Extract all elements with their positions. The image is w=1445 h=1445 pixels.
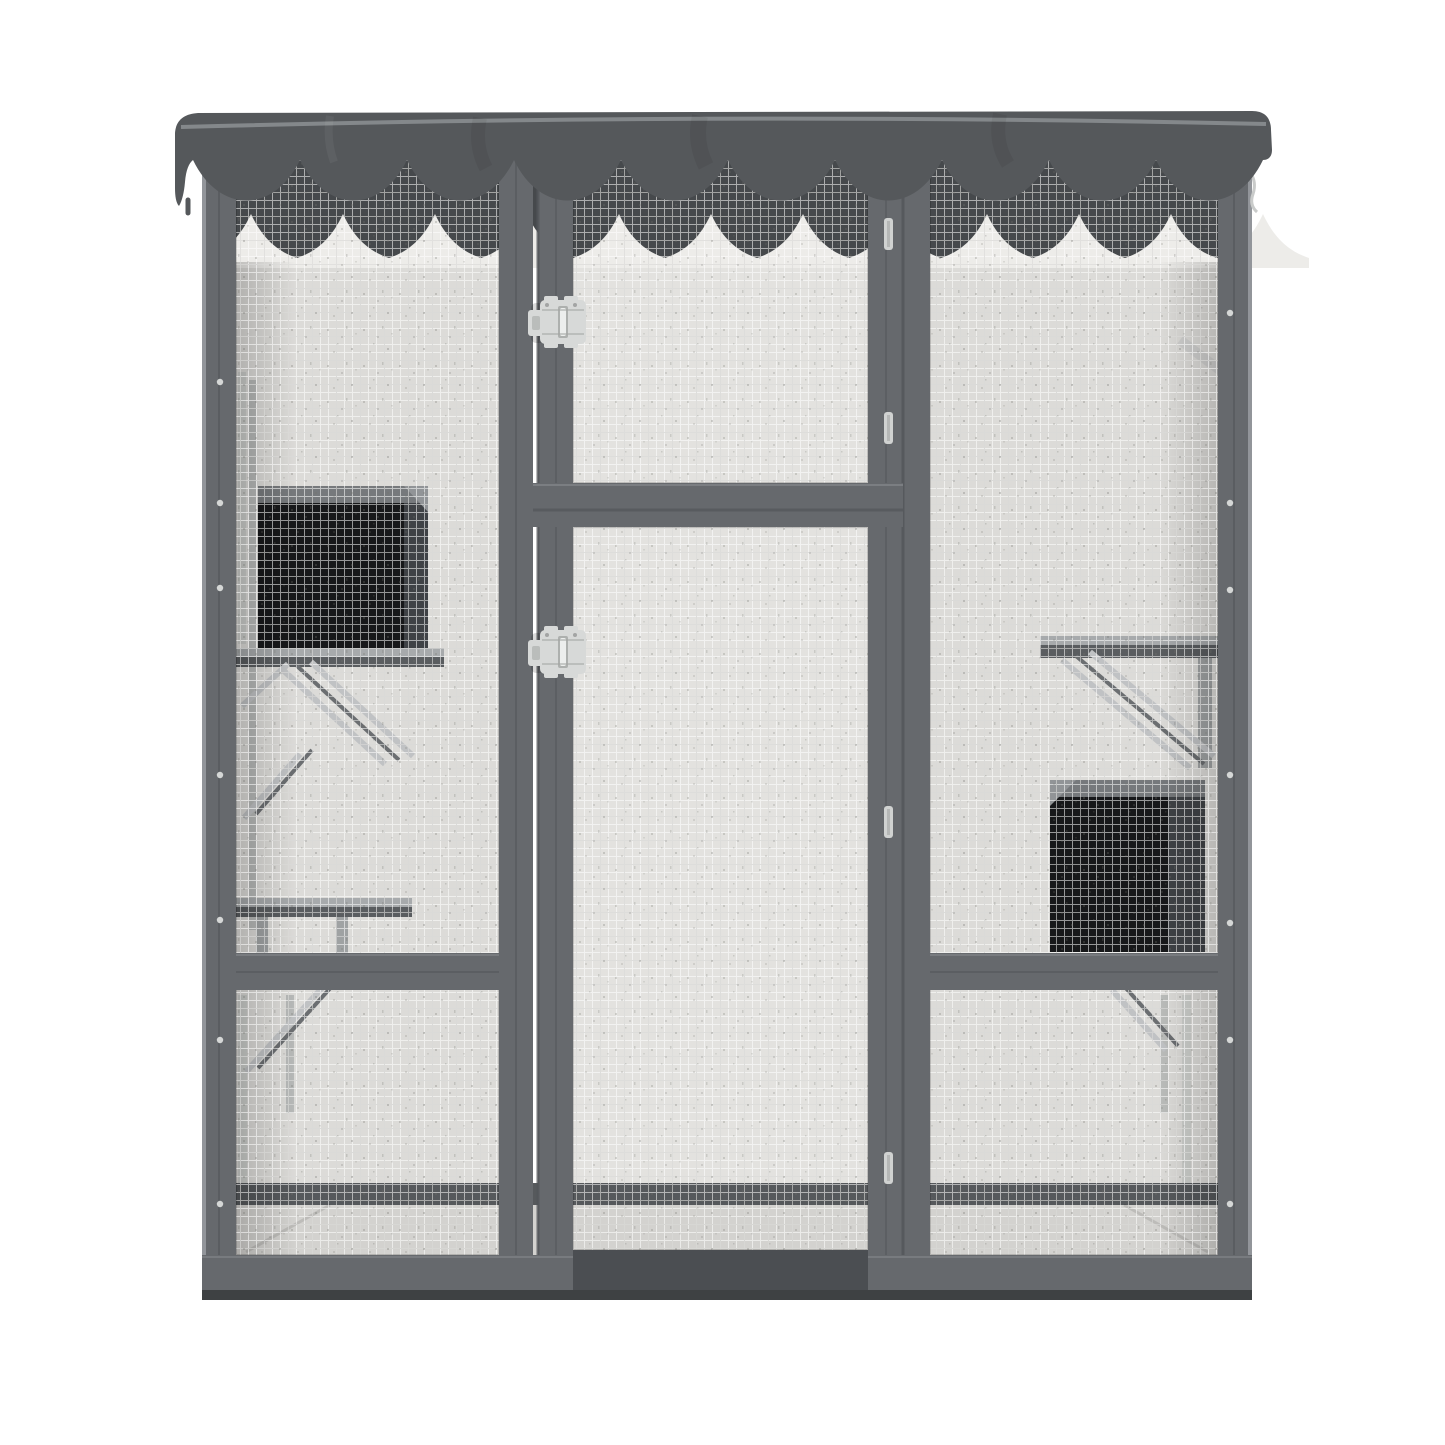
door-mid-rail	[533, 483, 903, 527]
catio-product-image	[0, 0, 1445, 1445]
left-outer-post	[202, 150, 236, 1295]
right-mesh-grid	[930, 150, 1218, 1255]
door-upper-mesh-grid	[573, 150, 868, 483]
door-latch-upper	[528, 296, 586, 348]
door-left-post	[499, 150, 533, 1295]
left-panel-rail	[236, 953, 499, 990]
base-rail	[202, 1250, 1252, 1300]
door-latch-lower	[528, 626, 586, 678]
door-right-post	[903, 150, 930, 1295]
door-hinge-2	[884, 412, 893, 444]
door-hinge-3	[884, 806, 893, 838]
left-mesh-grid	[236, 150, 499, 1255]
right-panel-rail	[930, 953, 1218, 990]
door-hinge-1	[884, 218, 893, 250]
door-lower-mesh-grid	[573, 527, 868, 1250]
wire-mesh-overlay	[236, 150, 1218, 1255]
door-hinge-4	[884, 1152, 893, 1184]
right-outer-post	[1218, 150, 1252, 1295]
door-right-stile	[868, 150, 903, 1295]
door-bottom-rail	[573, 1250, 868, 1290]
